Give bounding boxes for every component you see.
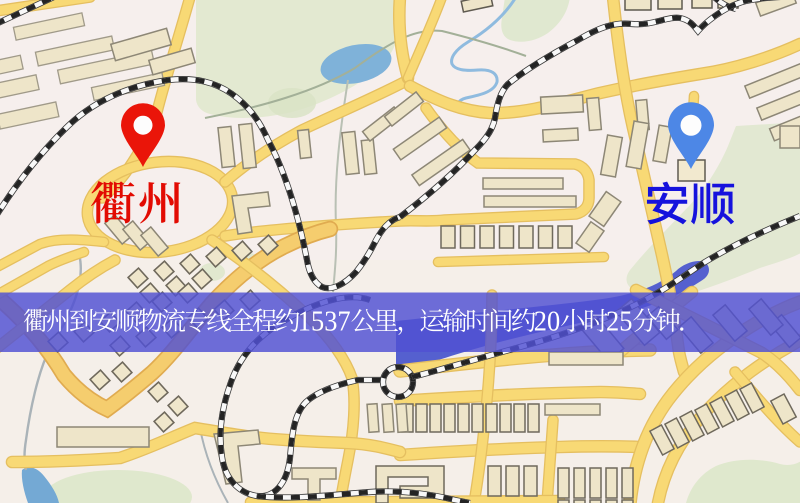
- svg-text:20: 20: [534, 307, 560, 338]
- svg-text:1537: 1537: [298, 307, 351, 338]
- svg-text:.: .: [678, 307, 685, 338]
- svg-text:25: 25: [606, 307, 632, 338]
